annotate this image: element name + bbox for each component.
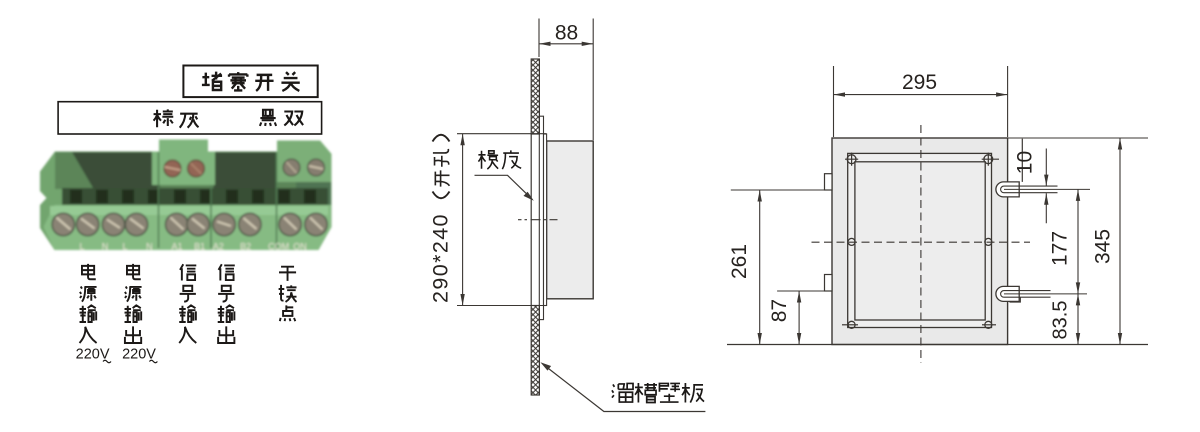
svg-text:87: 87 [768, 299, 791, 322]
svg-text:83.5: 83.5 [1050, 301, 1072, 340]
svg-text:261: 261 [728, 244, 751, 279]
svg-text:295: 295 [902, 71, 937, 94]
svg-text:10: 10 [1014, 151, 1037, 174]
svg-text:177: 177 [1049, 231, 1072, 266]
svg-text:345: 345 [1092, 229, 1115, 264]
svg-text:88: 88 [555, 22, 578, 45]
svg-text:290*240: 290*240 [429, 213, 453, 303]
